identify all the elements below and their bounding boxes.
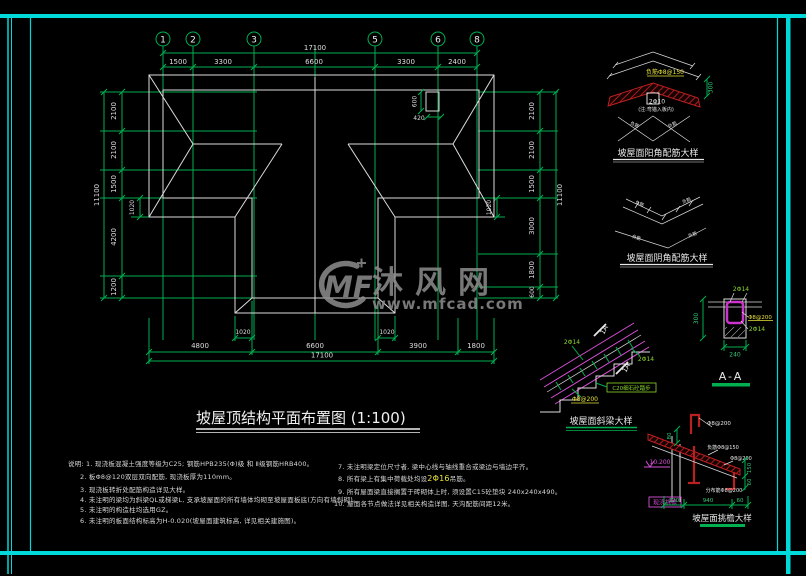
section-top-bars: 2Φ14 bbox=[733, 286, 749, 293]
beam-bot-bars-label: 2Φ14 bbox=[638, 356, 654, 363]
dim-bottom-total: 17100 bbox=[311, 352, 333, 360]
note-line-4: 4. 未注明的梁均为斜梁QL或梯梁L, 支承坡屋面的所有墙体均砌至坡屋面板底(方… bbox=[80, 494, 360, 504]
note-line-10: 10. 屋面各节点做法详见相关构造详图, 天沟配筋间距12米。 bbox=[334, 498, 515, 508]
chimney: 600 420 bbox=[412, 89, 445, 122]
note-line-8-highlight: 2Φ16 bbox=[427, 474, 449, 483]
detail-sloped-beam: 1A 1A 2Φ14 2Φ14 C20细石砼踏步 Φ8@200 坡屋面斜梁大样 bbox=[540, 323, 656, 431]
top-dimensions: 17100 1500 3300 6600 3300 2400 bbox=[160, 44, 480, 70]
section-stirrup-label: Φ8@200 bbox=[748, 315, 772, 321]
plan-title: 坡屋顶结构平面布置图 (1:100) bbox=[196, 409, 406, 427]
dim-right-4: 3000 bbox=[528, 217, 536, 235]
axis-bubble-2: 2 bbox=[190, 36, 196, 46]
note-line-8-suffix: 吊筋。 bbox=[450, 475, 470, 483]
dim-left-2: 2100 bbox=[110, 141, 118, 159]
dim-left-4: 4200 bbox=[110, 228, 118, 246]
dim-right-6: 600 bbox=[529, 286, 536, 298]
plan-title-group: 坡屋顶结构平面布置图 (1:100) bbox=[196, 409, 420, 433]
dim-right-total: 11100 bbox=[556, 184, 564, 206]
eave-dim-120: 120 bbox=[669, 498, 680, 504]
note-line-9: 9. 所有屋面梁直接搁置于砖砌体上时, 须设置C15砼垫块 240x240x49… bbox=[338, 486, 562, 496]
yang-diag-label-1: 负筋 bbox=[629, 120, 641, 130]
dim-bottom-seg3: 3900 bbox=[409, 342, 427, 350]
axis-bubble-5: 5 bbox=[372, 36, 378, 46]
dim-left-1: 2100 bbox=[110, 102, 118, 120]
section-dim-h: 300 bbox=[693, 313, 700, 325]
axis-bubble-3: 3 bbox=[251, 36, 257, 46]
dim-left-3: 1500 bbox=[110, 175, 118, 193]
yang-diag-label-2: 负筋 bbox=[667, 119, 679, 129]
dim-top-seg5: 2400 bbox=[448, 58, 466, 66]
detail-eave: 80 10.200 现浇挑檐 Φ8@200 负筋Φ8@150 Φ8@200 分布… bbox=[644, 415, 753, 527]
note-line-1: 说明: 1. 现浇板混凝土强度等级为C25; 钢筋HPB235(Φ)级 和 Ⅱ级… bbox=[68, 458, 313, 468]
watermark-url: www.mfcad.com bbox=[372, 295, 524, 313]
eave-dim-940: 940 bbox=[703, 498, 714, 504]
dim-chimney-w: 420 bbox=[413, 115, 425, 122]
detail-eave-title: 坡屋面挑檐大样 bbox=[692, 513, 752, 524]
dim-chimney-h: 600 bbox=[412, 96, 419, 108]
eave-label-4: 分布筋Φ8@200 bbox=[706, 487, 743, 494]
detail-beam-title: 坡屋面斜梁大样 bbox=[569, 415, 632, 427]
dim-bottom-seg2: 6600 bbox=[306, 342, 324, 350]
beam-top-bars-label: 2Φ14 bbox=[564, 339, 580, 346]
dim-left-offset: 1020 bbox=[129, 200, 136, 215]
note-line-8-prefix: 8. 所有梁上有集中荷载处均设 bbox=[338, 475, 427, 483]
watermark: MF 沐风网 www.mfcad.com bbox=[322, 259, 524, 314]
dim-bottom-offset-right: 1020 bbox=[379, 329, 394, 336]
dim-right-5: 1800 bbox=[528, 261, 536, 279]
dim-bottom-seg4: 1800 bbox=[467, 342, 485, 350]
watermark-logo: MF bbox=[324, 270, 373, 304]
dim-top-seg1: 1500 bbox=[169, 58, 187, 66]
dim-right-3: 1500 bbox=[528, 175, 536, 193]
yang-dim-300: 300 bbox=[708, 82, 715, 94]
dim-left-5: 1200 bbox=[110, 278, 118, 296]
left-dimensions: 11100 2100 2100 1500 4200 1200 1020 bbox=[93, 89, 150, 301]
dim-top-seg3: 6600 bbox=[305, 58, 323, 66]
axis-bubble-1: 1 bbox=[160, 36, 166, 46]
detail-section-title: A-A bbox=[719, 370, 744, 383]
axis-bubble-6: 6 bbox=[435, 36, 441, 46]
detail-yin-title: 坡屋面阴角配筋大样 bbox=[626, 252, 707, 264]
beam-section-cut-1: 1A bbox=[598, 324, 610, 336]
note-line-8: 8. 所有梁上有集中荷载处均设2Φ16吊筋。 bbox=[338, 473, 470, 483]
dim-top-seg4: 3300 bbox=[397, 58, 415, 66]
beam-step-label: C20细石砼踏步 bbox=[612, 384, 651, 392]
dim-top-seg2: 3300 bbox=[214, 58, 232, 66]
yin-diag-label-3: 负筋 bbox=[631, 233, 642, 243]
eave-label-1: Φ8@200 bbox=[707, 421, 731, 427]
eave-dim-60: 60 bbox=[737, 498, 744, 504]
eave-label-2: 负筋Φ8@150 bbox=[707, 444, 739, 451]
eave-dim-150: 150 bbox=[747, 462, 753, 473]
note-line-6: 6. 未注明的板面结构标高为H-0.020(坡屋面建筑标高, 详见相关建施图)。 bbox=[80, 515, 300, 525]
yang-top-rebar-label: 负筋Φ8@150 bbox=[646, 68, 684, 76]
axis-bubble-8: 8 bbox=[474, 36, 480, 46]
dim-right-1: 2100 bbox=[528, 102, 536, 120]
section-dim-w: 240 bbox=[729, 352, 741, 359]
yang-mid-rebar-label: 2Φ10 bbox=[649, 99, 665, 106]
eave-dim-80: 80 bbox=[667, 432, 673, 439]
section-bot-bars: 2Φ14 bbox=[749, 326, 765, 333]
note-line-3: 3. 现浇板转折处配筋构造详见大样。 bbox=[80, 484, 189, 494]
detail-yin-corner: 负筋 负筋 负筋 负筋 坡屋面阴角配筋大样 bbox=[615, 195, 713, 267]
eave-label-3: Φ8@200 bbox=[730, 456, 752, 462]
dim-left-total: 11100 bbox=[93, 184, 101, 206]
beam-stirrup-label: Φ8@200 bbox=[572, 396, 598, 403]
dim-right-2: 2100 bbox=[528, 141, 536, 159]
note-line-7: 7. 未注明梁定位尺寸者, 梁中心线与轴线重合或梁边与墙边平齐。 bbox=[338, 461, 532, 471]
detail-yang-title: 坡屋面阳角配筋大样 bbox=[617, 147, 698, 159]
yang-note: (注:弯锚入板内) bbox=[638, 106, 674, 113]
detail-yang-corner: 负筋Φ8@150 2Φ10 (注:弯锚入板内) 300 负筋 负筋 坡屋面阳角配… bbox=[607, 52, 715, 162]
dim-top-total: 17100 bbox=[304, 44, 326, 52]
note-line-2: 2. 板Φ8@120双层双向配筋, 现浇板厚为110mm。 bbox=[80, 471, 236, 481]
yin-diag-label-4: 负筋 bbox=[687, 230, 698, 240]
dim-bottom-seg1: 4800 bbox=[191, 342, 209, 350]
eave-dim-60r: 60 bbox=[747, 478, 753, 485]
cad-sheet: { "watermark": { "logo": "MF", "brand": … bbox=[0, 0, 806, 576]
dim-bottom-offset-left: 1020 bbox=[235, 329, 250, 336]
note-line-5: 5. 未注明的构造柱均选用GZ。 bbox=[80, 504, 172, 514]
detail-section-aa: 300 240 2Φ14 Φ8@200 2Φ14 A-A bbox=[693, 286, 773, 387]
